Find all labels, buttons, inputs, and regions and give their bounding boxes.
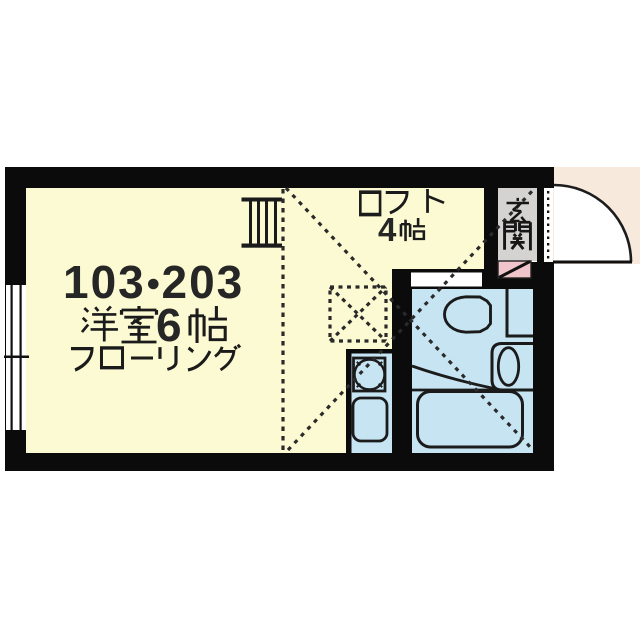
svg-text:4: 4 xyxy=(378,211,397,248)
svg-text:6: 6 xyxy=(156,299,182,351)
svg-text:103: 103 xyxy=(63,256,146,308)
